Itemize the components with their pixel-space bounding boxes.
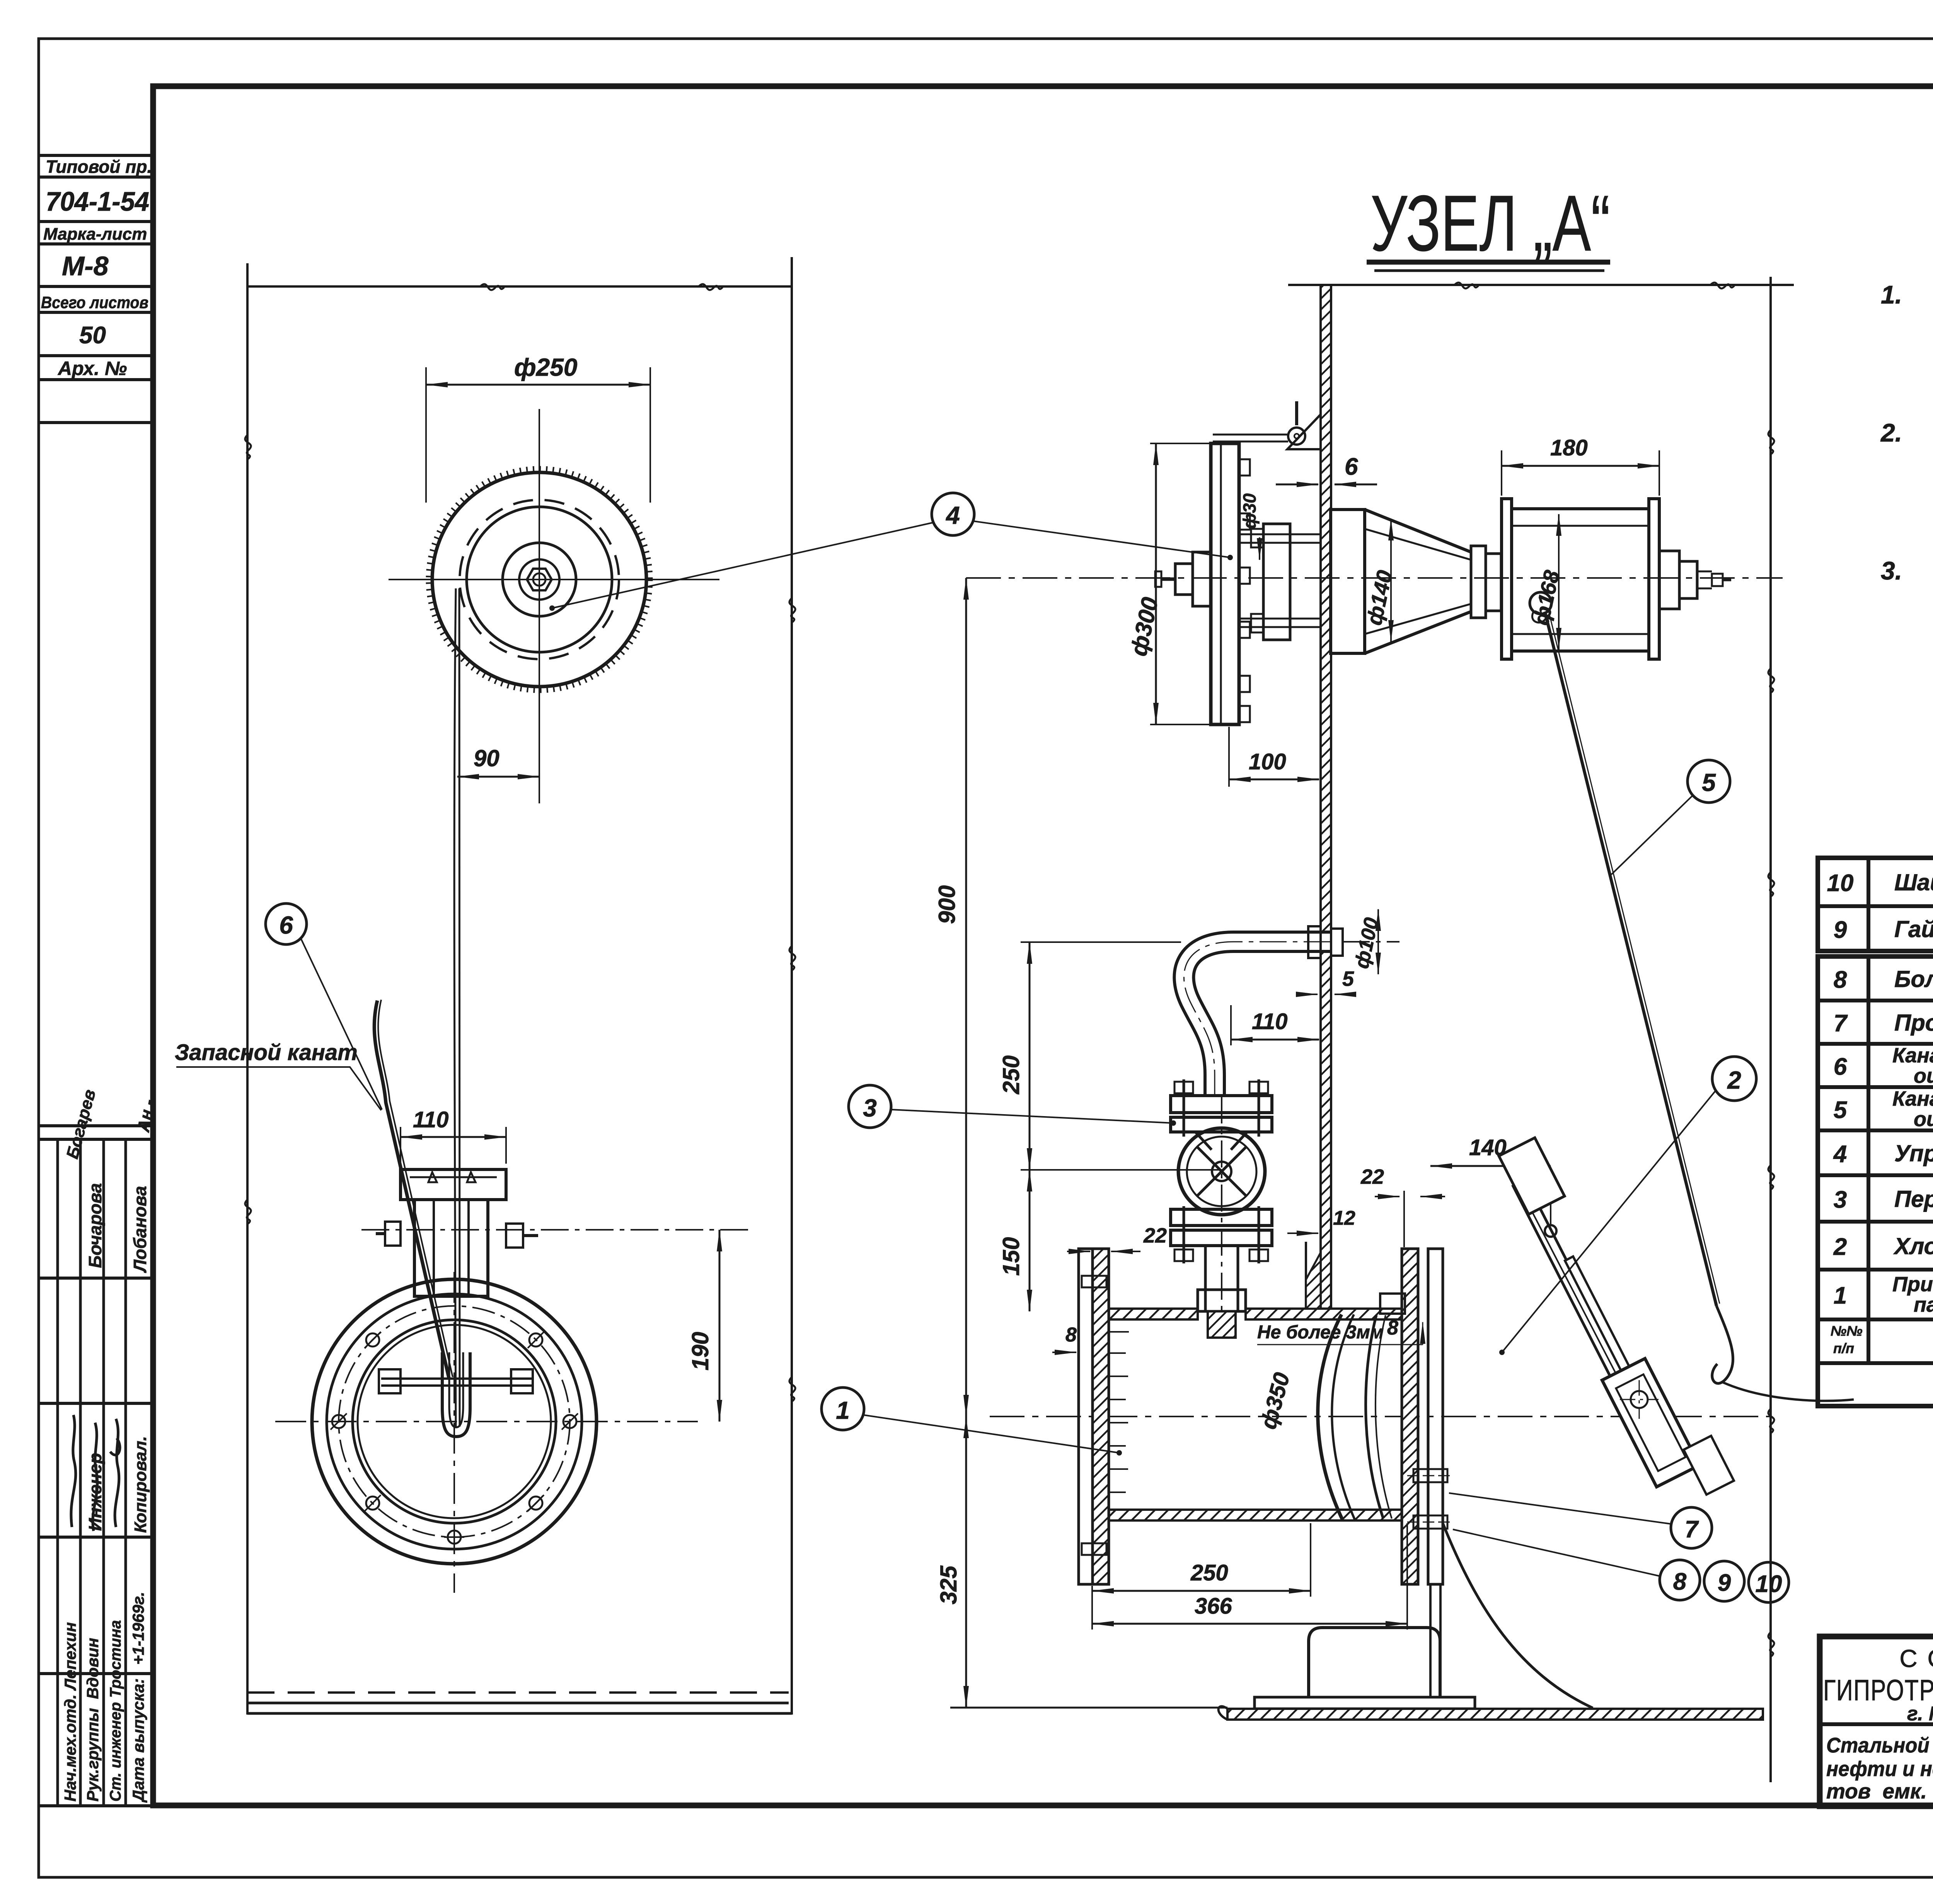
- svg-text:Дата выпуска: +1-1969г.: Дата выпуска: +1-1969г.: [129, 1592, 147, 1803]
- svg-text:Копировал.: Копировал.: [131, 1436, 150, 1533]
- svg-text:Прокладочный материал: Прокладочный материал: [1894, 1010, 1933, 1036]
- svg-text:нефти и нефтепродук-: нефти и нефтепродук-: [1826, 1757, 1933, 1781]
- svg-text:6: 6: [279, 911, 293, 939]
- svg-text:Канат 6-120-II-СС ℓ = 3 м: Канат 6-120-II-СС ℓ = 3 м: [1892, 1087, 1933, 1110]
- svg-text:Рук.группы Вдовин: Рук.группы Вдовин: [84, 1638, 102, 1802]
- svg-text:12: 12: [1333, 1207, 1355, 1229]
- svg-text:оцинкованный: оцинкованный: [1914, 1108, 1933, 1131]
- svg-text:110: 110: [413, 1107, 448, 1132]
- svg-text:4: 4: [1833, 1141, 1847, 1168]
- svg-text:Лобанова: Лобанова: [130, 1186, 150, 1273]
- svg-text:22: 22: [1143, 1224, 1167, 1247]
- svg-text:ф250: ф250: [514, 353, 577, 381]
- svg-text:50: 50: [79, 322, 106, 349]
- svg-text:Ст. инженер Тростина: Ст. инженер Тростина: [107, 1620, 124, 1802]
- svg-text:22: 22: [1360, 1165, 1384, 1188]
- svg-text:Всего листов: Всего листов: [41, 293, 148, 312]
- svg-text:9: 9: [1834, 917, 1847, 943]
- svg-text:250: 250: [998, 1055, 1024, 1094]
- svg-text:8: 8: [1834, 966, 1847, 993]
- svg-text:п/п: п/п: [1833, 1340, 1854, 1356]
- svg-text:Канат 6-120-II-СС ℓ = 15 м: Канат 6-120-II-СС ℓ = 15 м: [1892, 1044, 1933, 1067]
- svg-text:10: 10: [1827, 870, 1854, 897]
- svg-text:8: 8: [1673, 1568, 1687, 1595]
- svg-text:оцинкованный: оцинкованный: [1914, 1064, 1933, 1088]
- svg-text:6: 6: [1345, 453, 1358, 480]
- svg-text:Запасной канат: Запасной канат: [175, 1040, 358, 1065]
- svg-text:ф30: ф30: [1239, 493, 1260, 529]
- svg-text:900: 900: [934, 885, 960, 924]
- svg-text:Не более 3мм: Не более 3мм: [1257, 1322, 1384, 1343]
- svg-text:1: 1: [1834, 1282, 1847, 1309]
- svg-text:1: 1: [836, 1396, 850, 1424]
- svg-text:5: 5: [1702, 769, 1716, 796]
- svg-text:4: 4: [945, 501, 960, 529]
- svg-text:Арх. №: Арх. №: [57, 358, 127, 379]
- svg-text:190: 190: [687, 1332, 713, 1370]
- svg-text:Нач.мех.отд. Лепехин: Нач.мех.отд. Лепехин: [61, 1622, 79, 1802]
- svg-text:8: 8: [1387, 1317, 1398, 1339]
- svg-text:Гайка М16: Гайка М16: [1894, 916, 1933, 942]
- svg-text:325: 325: [936, 1565, 961, 1604]
- svg-text:г. Москва: г. Москва: [1907, 1703, 1933, 1725]
- svg-text:3: 3: [863, 1094, 877, 1122]
- svg-text:ГИПРОТРУБОПРОВОД: ГИПРОТРУБОПРОВОД: [1823, 1674, 1933, 1707]
- svg-text:250: 250: [1190, 1560, 1228, 1585]
- svg-text:М-8: М-8: [62, 251, 109, 281]
- svg-text:СССР: СССР: [1899, 1645, 1933, 1672]
- svg-text:5: 5: [1342, 967, 1354, 990]
- svg-text:2.: 2.: [1880, 418, 1902, 447]
- svg-text:патрубок ПРП-200: патрубок ПРП-200: [1914, 1293, 1933, 1316]
- svg-text:УЗЕЛ „А“: УЗЕЛ „А“: [1370, 179, 1610, 268]
- svg-text:Перепускное устройство: Перепускное устройство: [1894, 1186, 1933, 1212]
- svg-text:3.: 3.: [1881, 556, 1902, 585]
- svg-text:Управление хлопушкой: Управление хлопушкой: [1894, 1140, 1933, 1166]
- svg-text:180: 180: [1550, 435, 1588, 460]
- svg-text:150: 150: [998, 1237, 1024, 1276]
- svg-text:тов емк. 1000 м³: тов емк. 1000 м³: [1826, 1779, 1933, 1803]
- svg-text:90: 90: [474, 745, 499, 771]
- svg-text:366: 366: [1195, 1594, 1232, 1619]
- svg-text:10: 10: [1756, 1571, 1782, 1597]
- svg-text:Бочарова: Бочарова: [85, 1183, 105, 1268]
- svg-text:110: 110: [1252, 1009, 1287, 1034]
- svg-text:Хлопушка Х-200: Хлопушка Х-200: [1893, 1233, 1933, 1259]
- svg-text:6: 6: [1834, 1053, 1847, 1080]
- svg-text:Болт М16 х 60: Болт М16 х 60: [1894, 966, 1933, 992]
- svg-text:3: 3: [1834, 1186, 1847, 1213]
- svg-text:1.: 1.: [1881, 280, 1902, 309]
- svg-text:Приемо-раздаточный: Приемо-раздаточный: [1892, 1273, 1933, 1296]
- svg-text:5: 5: [1834, 1097, 1848, 1123]
- svg-text:7: 7: [1834, 1010, 1848, 1037]
- svg-text:9: 9: [1718, 1570, 1731, 1596]
- svg-text:2: 2: [1727, 1066, 1741, 1094]
- svg-text:№№: №№: [1831, 1323, 1863, 1339]
- svg-text:7: 7: [1685, 1516, 1699, 1543]
- svg-text:2: 2: [1833, 1234, 1847, 1260]
- svg-text:Типовой пр.: Типовой пр.: [46, 157, 152, 177]
- svg-text:100: 100: [1249, 749, 1286, 774]
- svg-text:Шайба 16: Шайба 16: [1894, 869, 1933, 895]
- svg-text:704-1-54: 704-1-54: [46, 186, 149, 216]
- svg-text:Марка-лист: Марка-лист: [43, 225, 147, 244]
- svg-text:8: 8: [1065, 1324, 1077, 1346]
- svg-text:Стальной резервуар для: Стальной резервуар для: [1826, 1733, 1933, 1757]
